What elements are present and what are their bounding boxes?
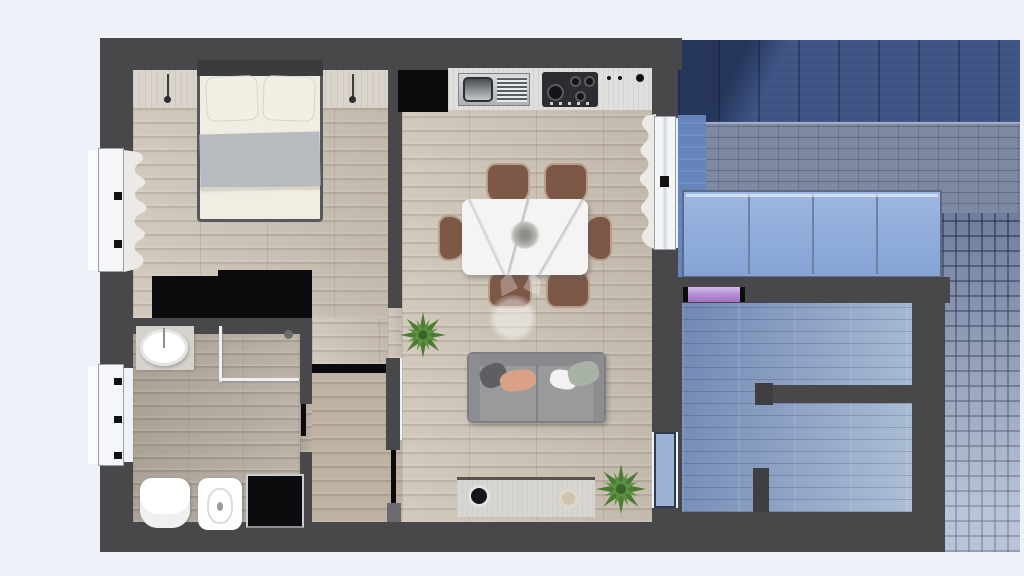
purple-lit-doorway	[683, 287, 745, 302]
left-wall-middle	[100, 268, 133, 368]
hallway-open-door	[312, 364, 386, 373]
left-wall-upper	[100, 38, 133, 152]
pendant-lamp	[352, 74, 354, 98]
bathroom-window-handle	[114, 416, 122, 423]
bed-runner-blanket	[199, 131, 320, 188]
double-bed	[197, 60, 323, 222]
media-sideboard	[457, 477, 595, 517]
living-curtain	[632, 114, 656, 250]
neighbour-partition-wall	[770, 385, 912, 403]
terrace-door-handle	[660, 176, 669, 187]
right-wall-upper	[652, 38, 678, 118]
dining-table	[462, 199, 588, 275]
hallway-living-wall	[386, 358, 400, 450]
potted-plant	[400, 312, 446, 358]
watermark-circle	[487, 295, 539, 341]
bathroom-window-handle	[114, 378, 122, 385]
shower-glass-horizontal	[219, 378, 299, 381]
counter-knob	[618, 76, 622, 80]
sofa-armrest	[469, 354, 480, 421]
potted-plant	[596, 464, 646, 514]
right-wall-lower	[652, 508, 678, 522]
sink-unit	[458, 73, 530, 106]
floorplan-render	[0, 0, 1024, 576]
bed-pillow	[205, 75, 259, 122]
hob-knobs	[550, 102, 592, 105]
glass-balustrade	[682, 190, 942, 278]
sofa	[467, 352, 606, 423]
pendant-lamp	[167, 74, 169, 98]
pendant-lamp-bulb	[164, 96, 171, 103]
washing-machine	[246, 474, 304, 528]
speaker	[468, 485, 490, 507]
sink-drainboard	[497, 77, 527, 102]
table-centerpiece	[510, 221, 540, 249]
right-wall-middle	[652, 248, 678, 432]
living-door-frame-cap	[387, 503, 401, 522]
cobblestone-path	[942, 213, 1020, 552]
bedroom-passage-floor	[312, 318, 388, 364]
toilet	[140, 478, 190, 528]
vase	[558, 488, 579, 509]
hob-burner	[570, 76, 581, 87]
kitchen-tall-unit	[398, 70, 448, 112]
wardrobe	[152, 276, 218, 318]
living-open-door	[391, 450, 396, 505]
neighbour-partition-stub	[753, 468, 769, 512]
courtyard-lower-wall	[745, 277, 950, 303]
bed-duvet-fold	[200, 187, 320, 190]
balustrade-divider	[748, 194, 750, 274]
bathroom-right-wall-upper	[300, 318, 312, 404]
bedroom-window-handle	[114, 240, 122, 248]
counter-knob	[607, 76, 611, 80]
living-lower-window	[654, 432, 676, 508]
dining-chair	[584, 215, 612, 261]
bedroom-window	[98, 148, 124, 272]
balustrade-divider	[876, 194, 878, 274]
bidet-drain	[217, 502, 223, 511]
bathroom-window-handle	[114, 452, 122, 459]
basin-faucet	[163, 328, 165, 348]
neighbour-room-floor	[682, 303, 912, 512]
shower-glass-vertical	[219, 326, 222, 382]
hob-burner	[575, 91, 586, 102]
bathroom-open-door	[301, 404, 306, 436]
gas-hob	[542, 72, 598, 107]
bottom-wall	[100, 522, 682, 552]
hob-burner	[584, 76, 595, 87]
wardrobe	[218, 270, 312, 318]
bedroom-window-handle	[114, 192, 122, 200]
sink-bowl	[463, 77, 493, 102]
bed-headboard	[197, 60, 323, 76]
shower-head	[284, 330, 293, 339]
balustrade-highlight	[686, 194, 938, 197]
sofa-seat-split	[536, 364, 538, 421]
pendant-lamp-bulb	[349, 96, 356, 103]
bidet	[198, 478, 242, 530]
hob-burner	[547, 84, 564, 101]
counter-canister	[636, 74, 644, 82]
neighbour-partition-stub	[755, 383, 773, 405]
hallway-floor	[312, 373, 388, 522]
balustrade-divider	[812, 194, 814, 274]
bedroom-curtain	[124, 150, 158, 272]
bed-pillow	[262, 75, 316, 122]
